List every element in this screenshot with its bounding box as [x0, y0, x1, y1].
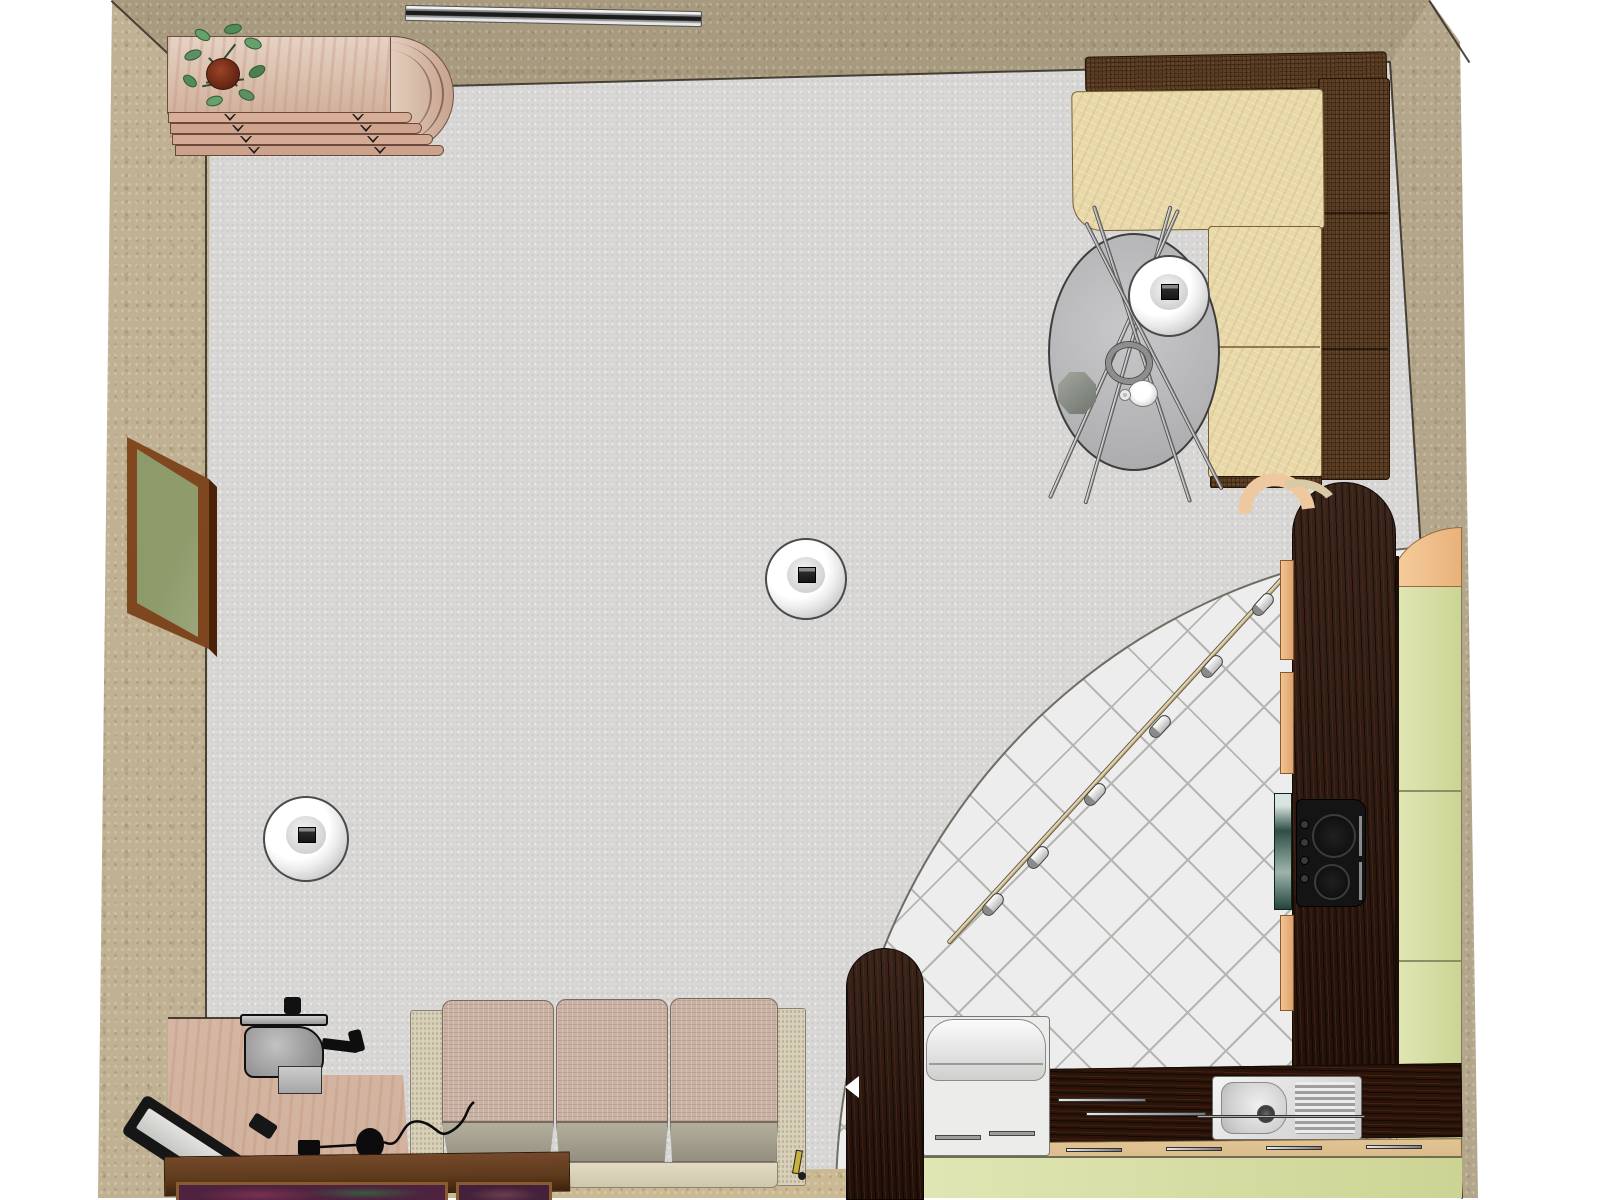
framed-picture	[176, 1182, 448, 1200]
burner-large	[1312, 814, 1356, 858]
green-cabinet-seam	[1397, 960, 1461, 962]
sink-faucet	[1257, 1105, 1275, 1123]
potted-plant	[180, 28, 276, 120]
sofa-armrest-left	[410, 1010, 444, 1172]
sofa-back-cushion	[556, 999, 668, 1122]
cooktop-knob	[1300, 856, 1309, 865]
drawer	[172, 134, 433, 145]
corner-sofa-seat-top	[1071, 89, 1324, 232]
plant-leaf	[205, 94, 224, 108]
cooktop	[1296, 799, 1366, 907]
drawer-strip-handle	[1266, 1146, 1322, 1150]
wenge-counter-column	[1292, 482, 1396, 1104]
lamp-mount-cube	[798, 567, 815, 583]
lamp-mount-cube	[1161, 284, 1178, 300]
plant-leaf	[183, 47, 203, 63]
burner-small	[1314, 864, 1350, 900]
coffee-cup-handle	[1120, 390, 1130, 400]
drawer	[170, 123, 422, 134]
sink-front-rail	[1197, 1115, 1365, 1118]
oven-handle	[1359, 816, 1362, 856]
corner-sofa-seat-right	[1208, 226, 1322, 478]
counter-drawer-bar	[1058, 1098, 1146, 1102]
kitchen-sink	[1212, 1076, 1362, 1140]
peach-front-sliver	[1280, 672, 1294, 774]
pendant-lamp-over-table	[1128, 255, 1210, 337]
plant-leaf	[243, 35, 264, 51]
lamp-recess	[286, 816, 325, 854]
peach-front-sliver	[1280, 560, 1294, 660]
corner-sofa-seat-seam	[1210, 346, 1320, 348]
counter-drawer-bar	[1086, 1112, 1206, 1116]
appliance-handle	[935, 1135, 981, 1140]
lamp-recess	[787, 557, 824, 593]
peach-front-sliver	[1280, 915, 1294, 1011]
hood-glass-panel	[1274, 793, 1292, 910]
cooktop-knob	[1300, 820, 1309, 829]
plant-leaf	[246, 62, 267, 81]
sofa-seat-cushion	[556, 1122, 668, 1162]
corner-sofa-back-seam	[1320, 212, 1388, 214]
oven-handle	[1359, 862, 1362, 900]
lamp-mount-cube	[298, 827, 316, 844]
sewing-machine-knob	[284, 997, 301, 1014]
sofa-back-cushion	[670, 998, 778, 1122]
plant-leaf	[193, 26, 213, 43]
small-tool-tip	[798, 1172, 806, 1180]
mouse-adapter	[298, 1140, 320, 1155]
green-base-front	[918, 1156, 1462, 1198]
drawer-strip-handle	[1366, 1145, 1422, 1149]
desk-gray-box	[278, 1066, 322, 1094]
sewing-machine-lid	[240, 1014, 328, 1026]
plant-leaf	[237, 87, 257, 103]
drawer	[175, 145, 444, 156]
sofa-seat-cushion	[670, 1122, 778, 1162]
appliance-lid	[926, 1019, 1046, 1081]
framed-picture	[456, 1182, 552, 1200]
corner-sofa-back-seam	[1320, 348, 1388, 350]
coffee-cup	[1128, 380, 1158, 407]
sink-drainboard	[1295, 1082, 1355, 1134]
plant-pot	[206, 58, 240, 90]
pendant-lamp-center	[765, 538, 847, 620]
sofa-base-front	[548, 1162, 778, 1188]
cooktop-knob	[1300, 874, 1309, 883]
cooktop-knob	[1300, 838, 1309, 847]
green-cabinet-seam	[1397, 790, 1461, 792]
corner-sofa-back-right	[1318, 78, 1390, 480]
appliance-handle	[989, 1131, 1035, 1136]
sink-bowl	[1221, 1082, 1287, 1134]
appliance-lid-seam	[929, 1063, 1043, 1065]
white-appliance	[922, 1016, 1050, 1156]
sofa-back-cushion	[442, 1000, 554, 1122]
lamp-recess	[1150, 274, 1187, 310]
drawer-strip-handle	[1166, 1147, 1222, 1151]
drawer-strip-handle	[1066, 1148, 1122, 1152]
pendant-lamp-left	[263, 796, 349, 882]
rounded-dark-column	[846, 948, 924, 1200]
room-top-view-render	[0, 0, 1600, 1200]
table-center-ring	[1106, 342, 1152, 384]
plant-leaf	[181, 72, 200, 90]
